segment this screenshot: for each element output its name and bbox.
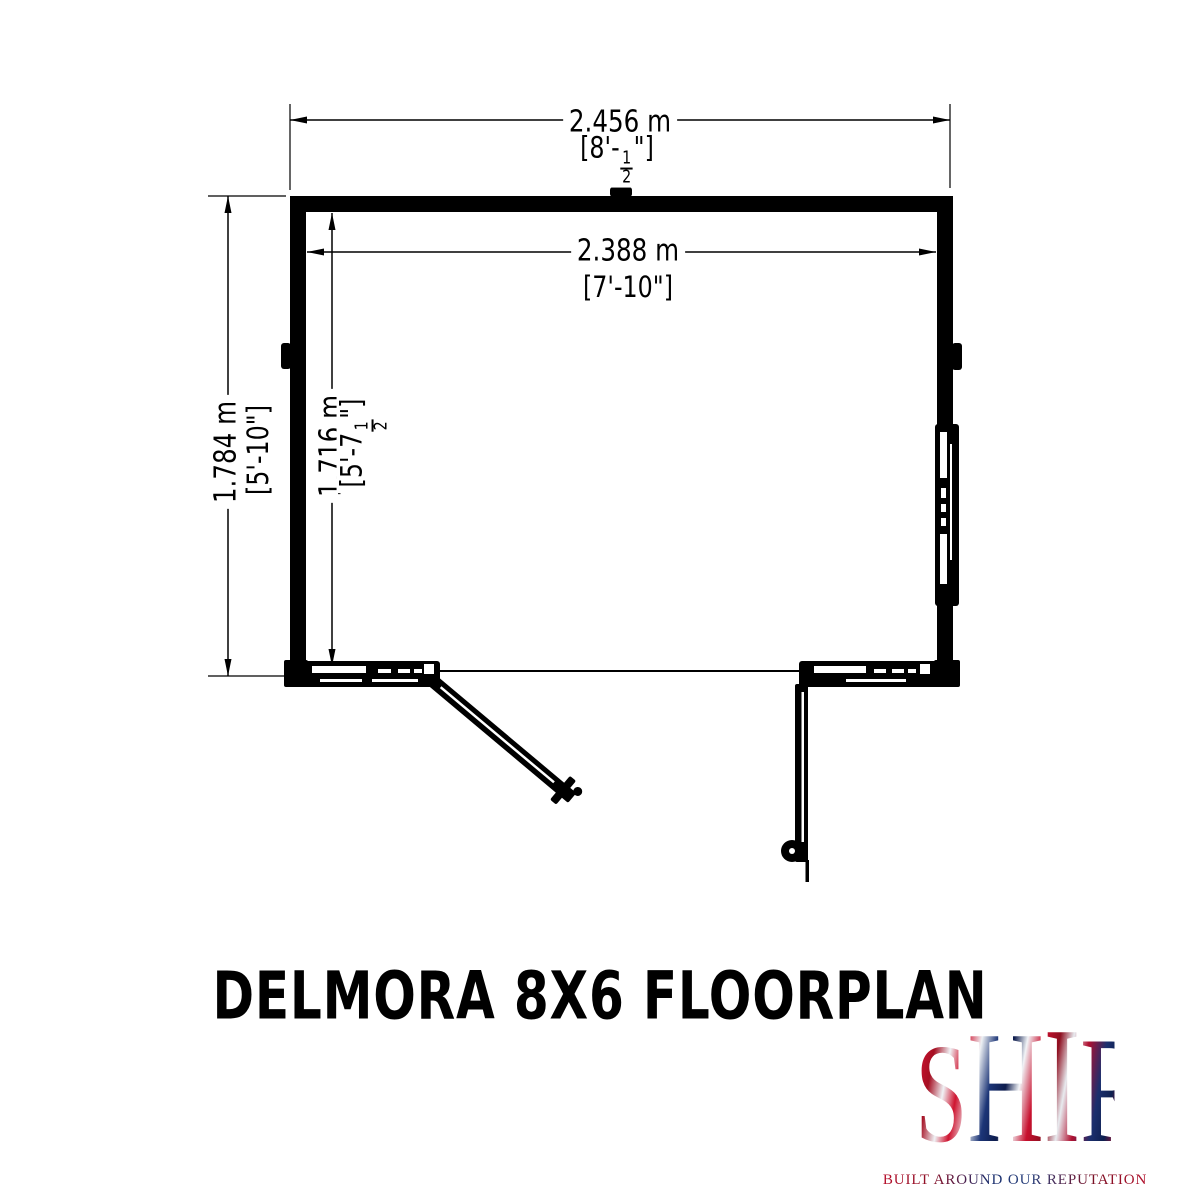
arrowhead <box>307 249 324 256</box>
door-leaf-inner-line <box>440 686 555 783</box>
dim-inner-depth-imperial: [5'-712"] <box>337 393 392 493</box>
roof-apex-marker <box>610 187 632 197</box>
frame-notch <box>920 664 930 674</box>
door-frame-left <box>290 661 440 687</box>
frame-dash <box>414 669 422 673</box>
arrowhead <box>933 117 950 124</box>
shire-logo: SHIRE BUILT AROUND OUR REPUTATION <box>864 1002 1166 1189</box>
window-dash <box>941 504 946 512</box>
frame-dash <box>398 669 410 673</box>
frame-glazing-slot <box>312 666 366 673</box>
dim-inner-width-imperial: [7'-10"] <box>577 272 678 302</box>
window <box>935 424 959 606</box>
imperial-feet: [8'- <box>580 131 620 165</box>
door-leaf-right <box>781 684 809 882</box>
window-glazing-slot <box>940 432 947 478</box>
arrowhead <box>225 196 232 213</box>
frame-dash <box>378 669 391 673</box>
arrowhead <box>225 659 232 676</box>
frame-dash <box>372 679 418 682</box>
fraction-denominator: 2 <box>374 420 391 432</box>
frame-dash <box>874 669 886 673</box>
logo-letter: S <box>915 1014 967 1172</box>
arrowhead <box>329 213 336 230</box>
right-wall-fixing-marker <box>952 343 962 370</box>
door-knob-stem <box>806 860 810 882</box>
door-leaf-left <box>423 669 586 813</box>
dim-inner-width-metric: 2.388 m <box>571 235 685 267</box>
door-knob-center <box>789 848 795 854</box>
dim-outer-depth-metric: 1.784 m <box>210 395 242 509</box>
floorplan-page: 2.456 m [8'-12"] 2.388 m [7'-10"] 1.784 … <box>0 0 1200 1200</box>
imperial-feet: [5'-7 <box>335 433 369 488</box>
frame-glazing-slot <box>814 666 866 673</box>
frame-dash <box>320 679 362 682</box>
wall-left <box>290 196 306 678</box>
left-wall-fixing-marker <box>281 343 291 369</box>
window-dash <box>941 518 946 526</box>
frame-dash <box>892 669 904 673</box>
door-frame-right <box>799 661 940 687</box>
logo-letter: R <box>1080 1006 1147 1174</box>
arrowhead <box>919 249 936 256</box>
door-leaf-inner-line <box>802 692 805 842</box>
arrowhead <box>290 117 307 124</box>
shire-logo-wordmark: SHIRE <box>915 1002 1114 1168</box>
window-mullion-line <box>950 444 952 560</box>
frame-dash <box>908 669 916 673</box>
dim-outer-width-imperial: [8'-12"] <box>574 133 659 188</box>
fraction: 12 <box>620 151 632 188</box>
fraction-denominator: 2 <box>620 170 632 187</box>
imperial-close: "] <box>335 399 369 419</box>
wall-top <box>290 196 953 212</box>
dim-outer-depth-imperial: [5'-10"] <box>243 399 273 500</box>
window-glazing-slot <box>940 534 947 584</box>
door-frame-left-body <box>290 661 440 687</box>
imperial-close: "] <box>634 131 654 165</box>
logo-letter: I <box>1044 993 1080 1177</box>
logo-letter: H <box>967 998 1043 1176</box>
fraction: 12 <box>355 420 392 432</box>
logo-letter: E <box>1147 1031 1197 1168</box>
door-frame-right-body <box>799 661 940 687</box>
window-dash <box>941 488 946 498</box>
frame-dash <box>846 679 906 682</box>
frame-notch <box>424 664 434 674</box>
